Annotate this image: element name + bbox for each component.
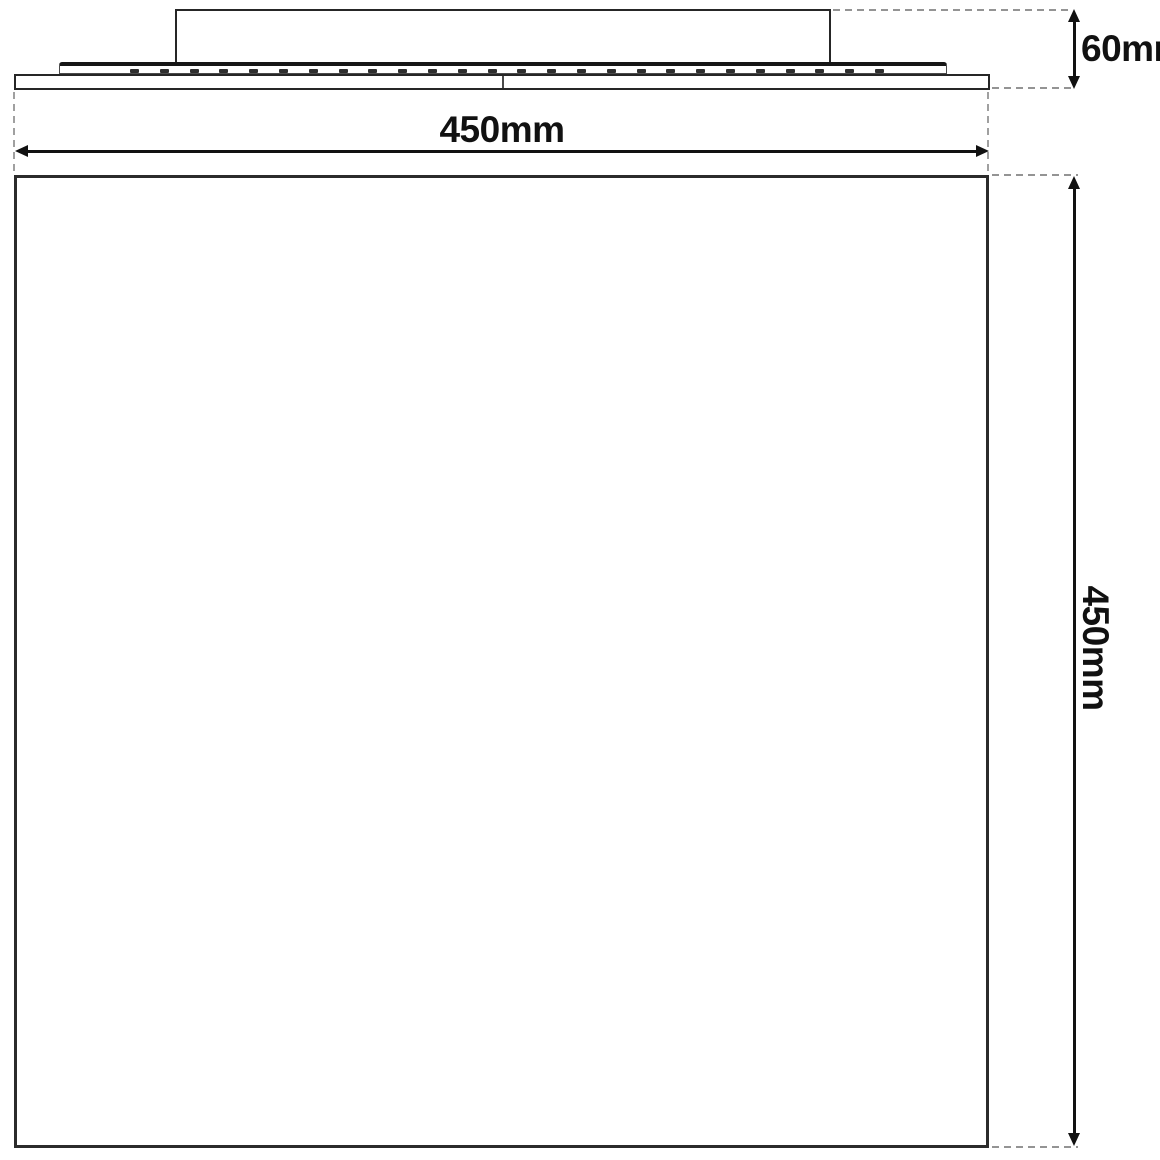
led-tick bbox=[398, 69, 407, 73]
led-tick bbox=[756, 69, 765, 73]
led-tick bbox=[130, 69, 139, 73]
width-dimension-line bbox=[26, 150, 978, 153]
led-tick bbox=[190, 69, 199, 73]
led-tick bbox=[815, 69, 824, 73]
arrowhead-up-icon bbox=[1068, 9, 1080, 22]
led-tick bbox=[488, 69, 497, 73]
height-dimension-line bbox=[1073, 20, 1076, 78]
side-view-driver-box bbox=[175, 9, 831, 64]
led-tick bbox=[696, 69, 705, 73]
led-tick bbox=[577, 69, 586, 73]
height-dimension-label: 60mm bbox=[1081, 30, 1160, 68]
led-tick bbox=[428, 69, 437, 73]
side-view-panel-seam bbox=[502, 76, 504, 88]
led-tick bbox=[368, 69, 377, 73]
led-tick bbox=[458, 69, 467, 73]
vertical-dimension-label: 450mm bbox=[1076, 585, 1114, 710]
led-tick bbox=[845, 69, 854, 73]
front-view-panel-face bbox=[14, 175, 989, 1148]
led-tick bbox=[309, 69, 318, 73]
led-tick bbox=[726, 69, 735, 73]
led-tick bbox=[339, 69, 348, 73]
led-tick bbox=[279, 69, 288, 73]
arrowhead-down-icon bbox=[1068, 76, 1080, 89]
led-tick bbox=[160, 69, 169, 73]
led-tick bbox=[637, 69, 646, 73]
extension-line-square-top bbox=[992, 174, 1078, 176]
extension-line-box-top bbox=[833, 9, 1071, 11]
extension-line-panel-bottom bbox=[992, 87, 1072, 89]
width-dimension-label: 450mm bbox=[14, 111, 990, 149]
led-tick bbox=[607, 69, 616, 73]
extension-line-square-bottom bbox=[992, 1146, 1078, 1148]
led-tick bbox=[547, 69, 556, 73]
led-tick bbox=[517, 69, 526, 73]
led-tick bbox=[219, 69, 228, 73]
led-tick-row bbox=[130, 69, 886, 73]
drawing-canvas: 60mm 450mm 450mm bbox=[0, 0, 1160, 1160]
led-tick bbox=[786, 69, 795, 73]
arrowhead-down-icon bbox=[1068, 1133, 1080, 1146]
led-tick bbox=[249, 69, 258, 73]
led-tick bbox=[875, 69, 884, 73]
led-tick bbox=[666, 69, 675, 73]
arrowhead-up-icon bbox=[1068, 176, 1080, 189]
